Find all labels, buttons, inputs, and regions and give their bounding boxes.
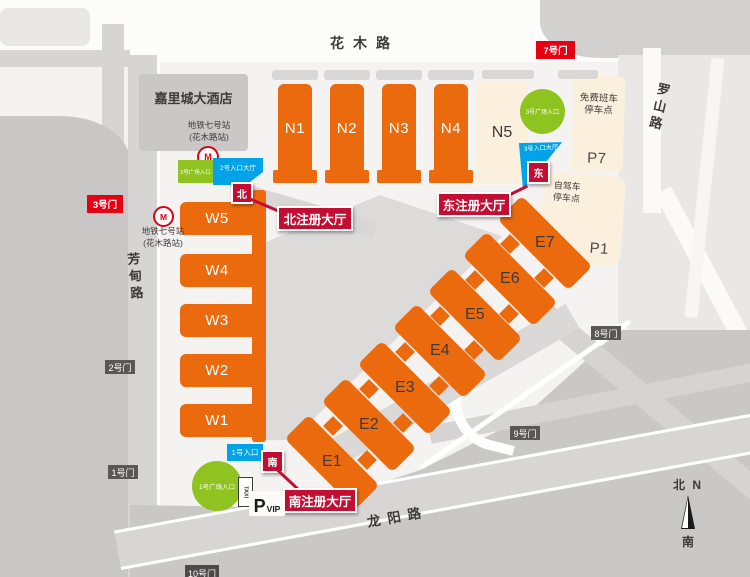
- plaza1-entrance: 1号广场入口: [192, 461, 242, 511]
- hall-n2-label: N2: [337, 120, 357, 137]
- hall-w2: W2: [180, 354, 254, 387]
- hall-n2: N2: [330, 84, 364, 172]
- vip-parking: P VIP: [249, 491, 285, 516]
- hotel-label: 嘉里城大酒店: [139, 88, 248, 107]
- metro-line1: 地铁七号站: [142, 226, 185, 236]
- north-badge-text: 北: [237, 186, 247, 201]
- hall-n1: N1: [278, 84, 312, 172]
- hall-e3-label: E3: [395, 379, 415, 397]
- gate-1-label: 1号门: [111, 466, 134, 479]
- south-registration-text: 南注册大厅: [289, 491, 352, 510]
- hall-n4-base: [429, 170, 473, 183]
- hall-n5: N5: [476, 82, 528, 184]
- gate-2-label: 2号门: [108, 361, 131, 374]
- gate-8-label: 8号门: [594, 327, 617, 340]
- hall-w1: W1: [180, 404, 254, 437]
- hall-w5-label: W5: [205, 210, 229, 227]
- north-registration-label: 北注册大厅: [277, 206, 353, 231]
- hall-stub: [272, 70, 318, 80]
- selfdrive-line1: 自驾车: [553, 180, 581, 192]
- gate-7: 7号门: [536, 41, 575, 59]
- compass-north-label: 北 N: [668, 476, 708, 493]
- gate-3: 3号门: [87, 195, 123, 213]
- hall-stub: [558, 70, 598, 79]
- hall2-entrance-label: 2号入口大厅: [213, 162, 263, 172]
- hall-e2-label: E2: [359, 416, 379, 434]
- hall-stub: [482, 70, 534, 79]
- hall-w2-label: W2: [205, 362, 229, 379]
- hall3-entrance-label: 3号入口大厅: [519, 142, 563, 153]
- west-dark-block: [0, 116, 130, 577]
- hall-e4-label: E4: [430, 342, 450, 360]
- gate-2: 2号门: [105, 360, 135, 374]
- expo-map: 免费班车 停车点 P7 自驾车 停车点 P1 N1 N2 N3 N4 N5 W5…: [0, 0, 750, 577]
- shuttle-line1: 免费班车: [580, 92, 618, 104]
- selfdrive-line2: 停车点: [553, 191, 581, 203]
- hall-n4: N4: [434, 84, 468, 172]
- metro-line2: (花木路站): [189, 132, 229, 142]
- compass-needle-icon: [681, 495, 695, 529]
- huamu-road-label: 花木路: [330, 33, 399, 53]
- hall-stub: [428, 70, 474, 80]
- hall-e7-label: E7: [535, 234, 555, 252]
- gate-9-label: 9号门: [513, 427, 536, 440]
- hall-w4-label: W4: [205, 262, 229, 279]
- hall-e1-label: E1: [322, 453, 342, 471]
- gate-8: 8号门: [591, 326, 621, 340]
- hall-n1-label: N1: [285, 120, 305, 137]
- north-registration-badge: 北: [231, 182, 253, 204]
- metro-icon: M: [153, 206, 174, 227]
- hall-stub: [324, 70, 370, 80]
- hall-n3-label: N3: [389, 120, 409, 137]
- hall-e5-label: E5: [465, 306, 485, 324]
- compass: 北 N 南: [668, 476, 708, 552]
- hall-e6-label: E6: [500, 270, 520, 288]
- taxi-label: TAXI: [243, 486, 249, 498]
- hall-n5-label: N5: [492, 124, 512, 142]
- hall-n4-label: N4: [441, 120, 461, 137]
- gate-9: 9号门: [510, 426, 540, 440]
- east-badge-text: 东: [534, 165, 544, 180]
- p1-label: P1: [589, 240, 609, 258]
- hall-w4: W4: [180, 254, 254, 287]
- west-spine: [252, 190, 266, 442]
- hall-n2-base: [325, 170, 369, 183]
- metro-line1: 地铁七号站: [188, 120, 231, 130]
- hall-w3: W3: [180, 304, 254, 337]
- plaza2-entrance-label: 2号广场入口: [180, 168, 211, 176]
- east-registration-text: 东注册大厅: [443, 195, 506, 214]
- compass-south-label: 南: [668, 533, 708, 550]
- vip-parking-p: P: [254, 498, 266, 514]
- plaza2-entrance: 2号广场入口: [178, 160, 213, 183]
- gate-3-label: 3号门: [93, 197, 117, 211]
- hall-w3-label: W3: [205, 312, 229, 329]
- p7-label: P7: [571, 149, 624, 168]
- south-registration-badge: 南: [261, 450, 284, 473]
- hall-n3-base: [377, 170, 421, 183]
- plaza3-entrance: 3号广场入口: [520, 89, 565, 134]
- gate-7-label: 7号门: [543, 43, 567, 57]
- south-registration-label: 南注册大厅: [283, 488, 357, 513]
- entry1-entrance-label: 1号入口: [232, 447, 259, 458]
- east-registration-label: 东注册大厅: [437, 192, 511, 217]
- south-badge-text: 南: [268, 454, 278, 469]
- hall-w1-label: W1: [205, 412, 229, 429]
- metro-station-label-west: 地铁七号站 (花木路站): [136, 226, 190, 249]
- hall2-entrance: 2号入口大厅: [213, 158, 263, 185]
- top-left-block: [0, 8, 90, 46]
- hall-n1-base: [273, 170, 317, 183]
- p7-parking-zone: 免费班车 停车点 P7: [570, 75, 625, 173]
- plaza1-entrance-label: 1号广场入口: [199, 481, 235, 491]
- hall-n3: N3: [382, 84, 416, 172]
- north-registration-text: 北注册大厅: [284, 209, 347, 228]
- gate-1: 1号门: [108, 465, 138, 479]
- metro-logo: M: [160, 212, 167, 222]
- gate-10-label: 10号门: [188, 567, 216, 577]
- entry1-entrance: 1号入口: [227, 444, 263, 461]
- shuttle-line2: 停车点: [584, 105, 613, 117]
- metro-line2: (花木路站): [143, 238, 183, 248]
- hall-stub: [376, 70, 422, 80]
- shuttle-parking-label: 免费班车 停车点: [572, 92, 625, 118]
- hall-w5: W5: [180, 202, 254, 235]
- vip-parking-vip: VIP: [267, 504, 281, 514]
- east-registration-badge: 东: [527, 161, 550, 184]
- metro-station-label-north: 地铁七号站 (花木路站): [178, 120, 240, 143]
- gate-10: 10号门: [185, 565, 219, 577]
- plaza3-entrance-label: 3号广场入口: [526, 107, 559, 116]
